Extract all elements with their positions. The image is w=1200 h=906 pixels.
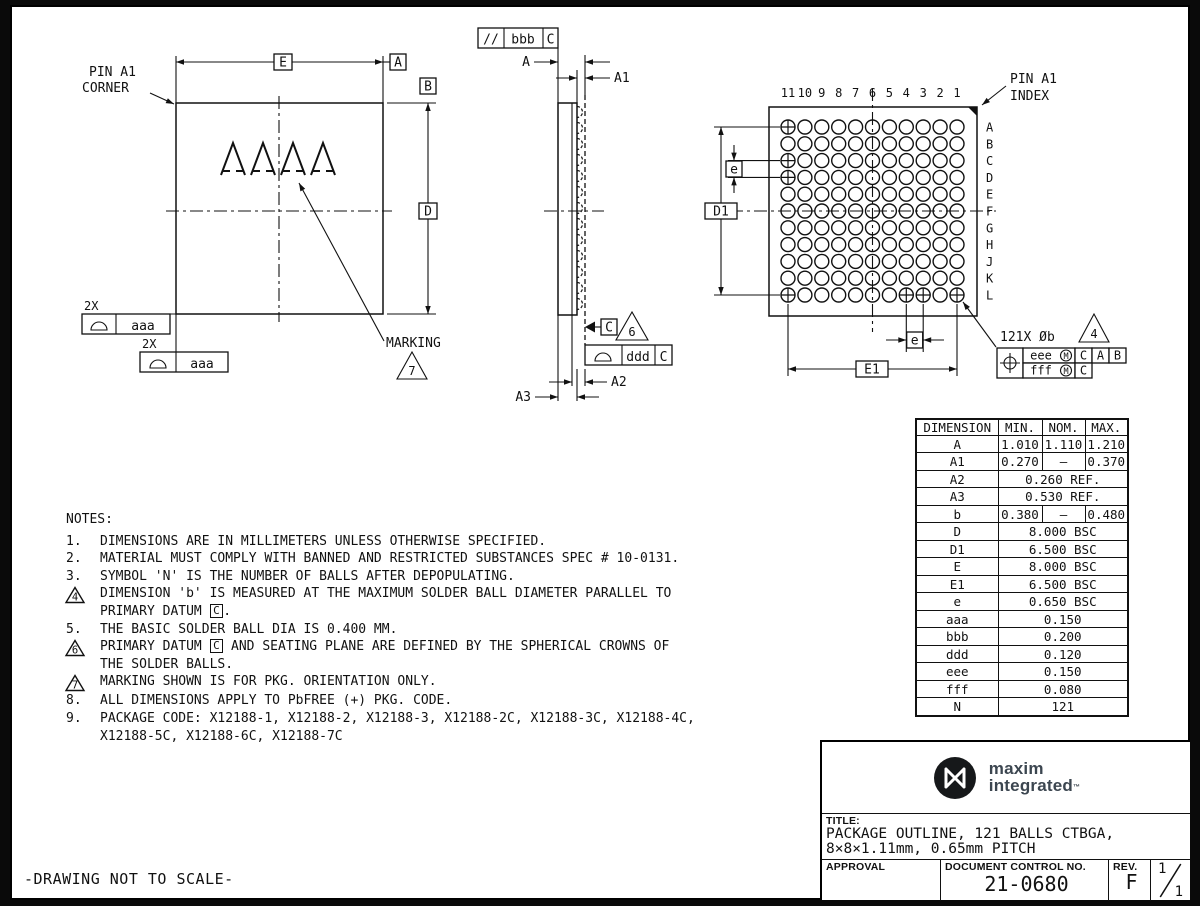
dim-d1-label: D1 — [713, 205, 729, 220]
dim-name-cell: aaa — [916, 610, 998, 627]
dim-name-cell: fff — [916, 680, 998, 697]
note-text: THE BASIC SOLDER BALL DIA IS 0.400 MM. — [100, 621, 397, 639]
dim-value-cell: 0.200 — [998, 628, 1128, 645]
ball — [781, 271, 795, 285]
ball — [798, 288, 812, 302]
dim-value-cell: 1.110 — [1042, 436, 1085, 453]
drawing-title-line2: 8×8×1.11mm, 0.65mm PITCH — [826, 842, 1190, 857]
document-control-cell: DOCUMENT CONTROL NO. 21-0680 — [940, 860, 1108, 901]
side-ball — [577, 219, 583, 230]
svg-text:6: 6 — [72, 645, 78, 657]
ball — [781, 137, 795, 151]
dim-name-cell: A — [916, 436, 998, 453]
table-row: A30.530 REF. — [916, 488, 1128, 505]
table-row: e0.650 BSC — [916, 593, 1128, 610]
package-body — [558, 103, 577, 315]
side-ball — [577, 299, 583, 310]
dim-value-cell: 121 — [998, 698, 1128, 716]
ball — [882, 254, 896, 268]
ddd-tolerance: ddd — [626, 350, 649, 365]
ball — [933, 271, 947, 285]
dim-name-cell: A2 — [916, 470, 998, 487]
aaa-tolerance: aaa — [131, 319, 154, 334]
column-labels: 1110987654321 — [781, 86, 961, 100]
note-number-marker: 2. — [66, 550, 100, 568]
row-label: F — [986, 205, 993, 219]
column-label: 5 — [886, 86, 893, 100]
pin-a1-corner-label2: CORNER — [82, 81, 129, 96]
ball — [950, 154, 964, 168]
dim-d-label: D — [424, 205, 432, 220]
ball — [832, 288, 846, 302]
ball — [950, 120, 964, 134]
datum-a-label: A — [394, 56, 402, 71]
note-7-number: 7 — [408, 364, 415, 378]
note-text: PRIMARY DATUM C AND SEATING PLANE ARE DE… — [100, 638, 669, 673]
datum-a-ref: A — [1097, 349, 1105, 363]
dim-name-cell: b — [916, 505, 998, 522]
ball — [950, 137, 964, 151]
table-row: A1.0101.1101.210 — [916, 436, 1128, 453]
table-row: N121 — [916, 698, 1128, 716]
dim-e-pitch-label2: e — [911, 334, 919, 349]
maxim-logo-icon — [932, 755, 978, 801]
dim-value-cell: 0.260 REF. — [998, 470, 1128, 487]
ball — [950, 271, 964, 285]
ball — [933, 254, 947, 268]
ball — [849, 170, 863, 184]
note-item: 8.ALL DIMENSIONS APPLY TO PbFREE (+) PKG… — [66, 692, 695, 710]
ball — [916, 271, 930, 285]
eee-tolerance: eee — [1030, 349, 1052, 363]
table-row: E16.500 BSC — [916, 575, 1128, 592]
marking-label: MARKING — [386, 336, 441, 351]
title-block: maxim integrated™ TITLE: PACKAGE OUTLINE… — [820, 740, 1190, 900]
ball — [899, 154, 913, 168]
ball — [950, 238, 964, 252]
side-ball — [577, 155, 583, 166]
marking-text — [221, 143, 335, 175]
ball — [832, 170, 846, 184]
ball — [899, 221, 913, 235]
dim-value-cell: – — [1042, 453, 1085, 470]
ball — [815, 154, 829, 168]
side-ball — [577, 283, 583, 294]
datum-c-ref3: C — [1080, 349, 1087, 363]
row-label: A — [986, 121, 994, 135]
note-text: DIMENSIONS ARE IN MILLIMETERS UNLESS OTH… — [100, 533, 546, 551]
dim-name-cell: eee — [916, 663, 998, 680]
ball — [798, 137, 812, 151]
dim-name-cell: e — [916, 593, 998, 610]
ball — [950, 221, 964, 235]
ball — [899, 254, 913, 268]
ball — [950, 187, 964, 201]
note-text: SYMBOL 'N' IS THE NUMBER OF BALLS AFTER … — [100, 568, 515, 586]
qty-2x-label: 2X — [84, 299, 99, 313]
ball — [899, 238, 913, 252]
dim-value-cell: 8.000 BSC — [998, 523, 1128, 540]
dimension-table: DIMENSIONMIN.NOM.MAX. A1.0101.1101.210A1… — [915, 418, 1129, 717]
side-ball — [577, 139, 583, 150]
dim-value-cell: 0.150 — [998, 663, 1128, 680]
revision-cell: REV. F — [1108, 860, 1150, 901]
dim-value-cell: 0.530 REF. — [998, 488, 1128, 505]
ball — [798, 154, 812, 168]
ball — [832, 120, 846, 134]
marking-char — [311, 143, 335, 175]
table-row: A10.270–0.370 — [916, 453, 1128, 470]
ball — [832, 221, 846, 235]
drawing-sheet: E A B D PIN A1 CORNER MARKING 7 2X — [0, 0, 1200, 906]
note-item: 2.MATERIAL MUST COMPLY WITH BANNED AND R… — [66, 550, 695, 568]
trademark-symbol: ™ — [1073, 784, 1080, 791]
datum-c-label: C — [605, 321, 613, 336]
ball — [849, 137, 863, 151]
dim-value-cell: 0.370 — [1085, 453, 1128, 470]
ball — [781, 221, 795, 235]
brand-row: maxim integrated™ — [822, 742, 1190, 814]
side-ball — [577, 123, 583, 134]
ball — [933, 288, 947, 302]
ball — [815, 221, 829, 235]
ball — [849, 288, 863, 302]
ball — [849, 154, 863, 168]
dim-name-cell: bbb — [916, 628, 998, 645]
ball — [798, 221, 812, 235]
ball — [933, 154, 947, 168]
ball — [916, 137, 930, 151]
side-ball — [577, 107, 583, 118]
dim-name-cell: D — [916, 523, 998, 540]
ball — [882, 221, 896, 235]
title-row: TITLE: PACKAGE OUTLINE, 121 BALLS CTBGA,… — [822, 814, 1190, 860]
ball — [798, 238, 812, 252]
ball — [882, 271, 896, 285]
mmc-m: M — [1063, 367, 1068, 377]
column-label: 8 — [835, 86, 842, 100]
ball — [916, 120, 930, 134]
note-number-marker: 3. — [66, 568, 100, 586]
dim-a1-label: A1 — [614, 71, 630, 86]
ball — [798, 170, 812, 184]
note-item: 7MARKING SHOWN IS FOR PKG. ORIENTATION O… — [66, 673, 695, 692]
ball — [882, 238, 896, 252]
fff-tolerance: fff — [1030, 364, 1052, 378]
pin-a1-index-label2: INDEX — [1010, 89, 1049, 104]
dim-a2-label: A2 — [611, 375, 627, 390]
dim-value-cell: 0.080 — [998, 680, 1128, 697]
dim-e1-label: E1 — [864, 363, 880, 378]
marking-char — [251, 143, 275, 175]
pin-a1-index-label: PIN A1 — [1010, 72, 1057, 87]
ball — [832, 154, 846, 168]
side-ball — [577, 203, 583, 214]
side-ball — [577, 235, 583, 246]
note-item: 5.THE BASIC SOLDER BALL DIA IS 0.400 MM. — [66, 621, 695, 639]
ball — [781, 238, 795, 252]
note-number-marker: 8. — [66, 692, 100, 710]
ball — [849, 221, 863, 235]
pin-a1-corner-label: PIN A1 — [89, 65, 136, 80]
note-number-marker: 5. — [66, 621, 100, 639]
column-label: 3 — [920, 86, 927, 100]
ball — [933, 187, 947, 201]
dim-name-cell: A1 — [916, 453, 998, 470]
table-row: fff0.080 — [916, 680, 1128, 697]
ball — [933, 120, 947, 134]
ball — [882, 170, 896, 184]
datum-c-ref4: C — [1080, 364, 1087, 378]
bbb-tolerance: bbb — [511, 33, 535, 48]
ball — [933, 238, 947, 252]
row-labels: ABCDEFGHJKL — [986, 121, 994, 303]
note-text: MARKING SHOWN IS FOR PKG. ORIENTATION ON… — [100, 673, 437, 691]
table-row: aaa0.150 — [916, 610, 1128, 627]
table-row: A20.260 REF. — [916, 470, 1128, 487]
ball — [849, 254, 863, 268]
column-label: 2 — [936, 86, 943, 100]
brand-name: maxim integrated™ — [989, 760, 1080, 796]
note-item: 4DIMENSION 'b' IS MEASURED AT THE MAXIMU… — [66, 585, 695, 620]
note-triangle-marker: 4 — [66, 585, 100, 604]
table-header: DIMENSION — [916, 419, 998, 436]
table-row: bbb0.200 — [916, 628, 1128, 645]
dim-name-cell: D1 — [916, 540, 998, 557]
ball — [882, 288, 896, 302]
ball — [815, 137, 829, 151]
side-ball — [577, 171, 583, 182]
pin-a1-chamfer-icon — [968, 107, 977, 116]
ball — [815, 254, 829, 268]
dim-value-cell: 0.380 — [998, 505, 1042, 522]
datum-c-ref2: C — [660, 350, 668, 365]
brand-line2: integrated — [989, 776, 1073, 795]
dim-value-cell: 1.210 — [1085, 436, 1128, 453]
datum-c-ref: C — [547, 33, 555, 48]
note-item: 9.PACKAGE CODE: X12188-1, X12188-2, X121… — [66, 710, 695, 745]
dim-name-cell: E — [916, 558, 998, 575]
ball — [882, 137, 896, 151]
note-6-number: 6 — [628, 325, 635, 339]
row-label: B — [986, 137, 993, 151]
ball — [798, 271, 812, 285]
ball — [849, 187, 863, 201]
ball — [882, 154, 896, 168]
dim-e-label: E — [279, 56, 287, 71]
aaa-tolerance2: aaa — [190, 357, 213, 372]
ball — [950, 254, 964, 268]
dim-value-cell: 1.010 — [998, 436, 1042, 453]
dim-value-cell: 8.000 BSC — [998, 558, 1128, 575]
ball — [798, 120, 812, 134]
sheet-total: 1 — [1175, 884, 1183, 900]
ball — [849, 120, 863, 134]
datum-b-ref: B — [1114, 349, 1121, 363]
ball — [815, 238, 829, 252]
ball — [933, 170, 947, 184]
dim-e-pitch-label: e — [730, 163, 738, 178]
table-header: NOM. — [1042, 419, 1085, 436]
ball — [815, 187, 829, 201]
ball — [815, 288, 829, 302]
ball — [899, 137, 913, 151]
ball — [916, 170, 930, 184]
ball — [798, 254, 812, 268]
doc-control-number: 21-0680 — [945, 874, 1108, 894]
note-text: ALL DIMENSIONS APPLY TO PbFREE (+) PKG. … — [100, 692, 452, 710]
row-label: K — [986, 272, 994, 286]
ball — [832, 137, 846, 151]
drawing-title-line1: PACKAGE OUTLINE, 121 BALLS CTBGA, — [826, 827, 1190, 842]
column-label: 6 — [869, 86, 876, 100]
row-label: J — [986, 255, 993, 269]
ball — [832, 187, 846, 201]
dim-value-cell: 6.500 BSC — [998, 575, 1128, 592]
column-label: 7 — [852, 86, 859, 100]
column-label: 1 — [953, 86, 960, 100]
row-label: E — [986, 188, 993, 202]
table-row: b0.380–0.480 — [916, 505, 1128, 522]
sheet-number: 1 — [1158, 861, 1166, 877]
datum-c-box: C — [210, 639, 224, 653]
datum-b-label: B — [424, 80, 432, 95]
rev-value: F — [1113, 873, 1150, 891]
ball — [899, 170, 913, 184]
table-row: ddd0.120 — [916, 645, 1128, 662]
table-header: MIN. — [998, 419, 1042, 436]
ball — [882, 187, 896, 201]
dim-value-cell: – — [1042, 505, 1085, 522]
mmc-m: M — [1063, 352, 1068, 362]
ball — [899, 187, 913, 201]
table-row: E8.000 BSC — [916, 558, 1128, 575]
ball — [899, 120, 913, 134]
side-balls — [577, 107, 583, 310]
ball — [933, 137, 947, 151]
ball-count-callout: 121X Øb — [1000, 330, 1055, 345]
dim-value-cell: 6.500 BSC — [998, 540, 1128, 557]
ball — [899, 271, 913, 285]
ball — [798, 187, 812, 201]
column-label: 4 — [903, 86, 910, 100]
dim-name-cell: E1 — [916, 575, 998, 592]
dim-a-label: A — [522, 55, 530, 70]
datum-c-flag-icon — [585, 322, 595, 333]
notes-block: NOTES: 1.DIMENSIONS ARE IN MILLIMETERS U… — [66, 511, 695, 745]
sheet-slash-icon — [1151, 860, 1190, 901]
approval-cell: APPROVAL — [822, 860, 940, 901]
table-row: eee0.150 — [916, 663, 1128, 680]
ball — [916, 187, 930, 201]
ball — [832, 238, 846, 252]
row-label: C — [986, 154, 993, 168]
column-label: 9 — [818, 86, 825, 100]
ball — [882, 120, 896, 134]
table-header: MAX. — [1085, 419, 1128, 436]
ball — [832, 254, 846, 268]
ball — [916, 254, 930, 268]
dim-value-cell: 0.120 — [998, 645, 1128, 662]
dim-value-cell: 0.270 — [998, 453, 1042, 470]
not-to-scale-note: -DRAWING NOT TO SCALE- — [24, 870, 234, 888]
title-block-bottom-row: APPROVAL DOCUMENT CONTROL NO. 21-0680 RE… — [822, 860, 1190, 901]
note-triangle-marker: 6 — [66, 638, 100, 657]
sheet-cell: 1 1 — [1150, 860, 1190, 901]
row-label: G — [986, 221, 993, 235]
plan-view: E A B D PIN A1 CORNER MARKING 7 2X — [82, 54, 441, 379]
ball — [916, 221, 930, 235]
parallelism-icon: // — [483, 33, 499, 48]
ball — [815, 271, 829, 285]
ball — [933, 221, 947, 235]
ball — [815, 170, 829, 184]
row-label: L — [986, 289, 993, 303]
note-number-marker: 1. — [66, 533, 100, 551]
bottom-view: 1110987654321 ABCDEFGHJKL PIN A1 INDEX D… — [705, 72, 1126, 378]
side-view: // bbb C A A1 C — [478, 28, 672, 405]
table-row: D8.000 BSC — [916, 523, 1128, 540]
ball — [916, 238, 930, 252]
ball — [815, 120, 829, 134]
note-number-marker: 9. — [66, 710, 100, 728]
ball — [916, 154, 930, 168]
note-text: MATERIAL MUST COMPLY WITH BANNED AND RES… — [100, 550, 679, 568]
column-label: 10 — [798, 86, 812, 100]
dim-value-cell: 0.480 — [1085, 505, 1128, 522]
dim-name-cell: A3 — [916, 488, 998, 505]
table-row: D16.500 BSC — [916, 540, 1128, 557]
marking-char — [281, 143, 305, 175]
dim-name-cell: ddd — [916, 645, 998, 662]
note-item: 1.DIMENSIONS ARE IN MILLIMETERS UNLESS O… — [66, 533, 695, 551]
note-item: 6PRIMARY DATUM C AND SEATING PLANE ARE D… — [66, 638, 695, 673]
side-ball — [577, 251, 583, 262]
marking-char — [221, 143, 245, 175]
notes-heading: NOTES: — [66, 511, 695, 529]
note-text: DIMENSION 'b' IS MEASURED AT THE MAXIMUM… — [100, 585, 671, 620]
datum-c-box: C — [210, 604, 224, 618]
qty-2x-label2: 2X — [142, 337, 157, 351]
note-4-number: 4 — [1090, 327, 1097, 341]
side-ball — [577, 267, 583, 278]
note-text: PACKAGE CODE: X12188-1, X12188-2, X12188… — [100, 710, 695, 745]
ball — [849, 271, 863, 285]
column-label: 11 — [781, 86, 795, 100]
ball — [781, 187, 795, 201]
ball — [849, 238, 863, 252]
side-ball — [577, 187, 583, 198]
svg-text:4: 4 — [72, 592, 78, 604]
ball — [781, 254, 795, 268]
svg-text:7: 7 — [72, 680, 78, 692]
note-triangle-marker: 7 — [66, 673, 100, 692]
row-label: H — [986, 238, 993, 252]
approval-label: APPROVAL — [826, 861, 940, 873]
dim-value-cell: 0.650 BSC — [998, 593, 1128, 610]
ball — [950, 170, 964, 184]
dim-a3-label: A3 — [515, 390, 531, 405]
dim-value-cell: 0.150 — [998, 610, 1128, 627]
row-label: D — [986, 171, 993, 185]
note-item: 3.SYMBOL 'N' IS THE NUMBER OF BALLS AFTE… — [66, 568, 695, 586]
ball — [832, 271, 846, 285]
dim-name-cell: N — [916, 698, 998, 716]
